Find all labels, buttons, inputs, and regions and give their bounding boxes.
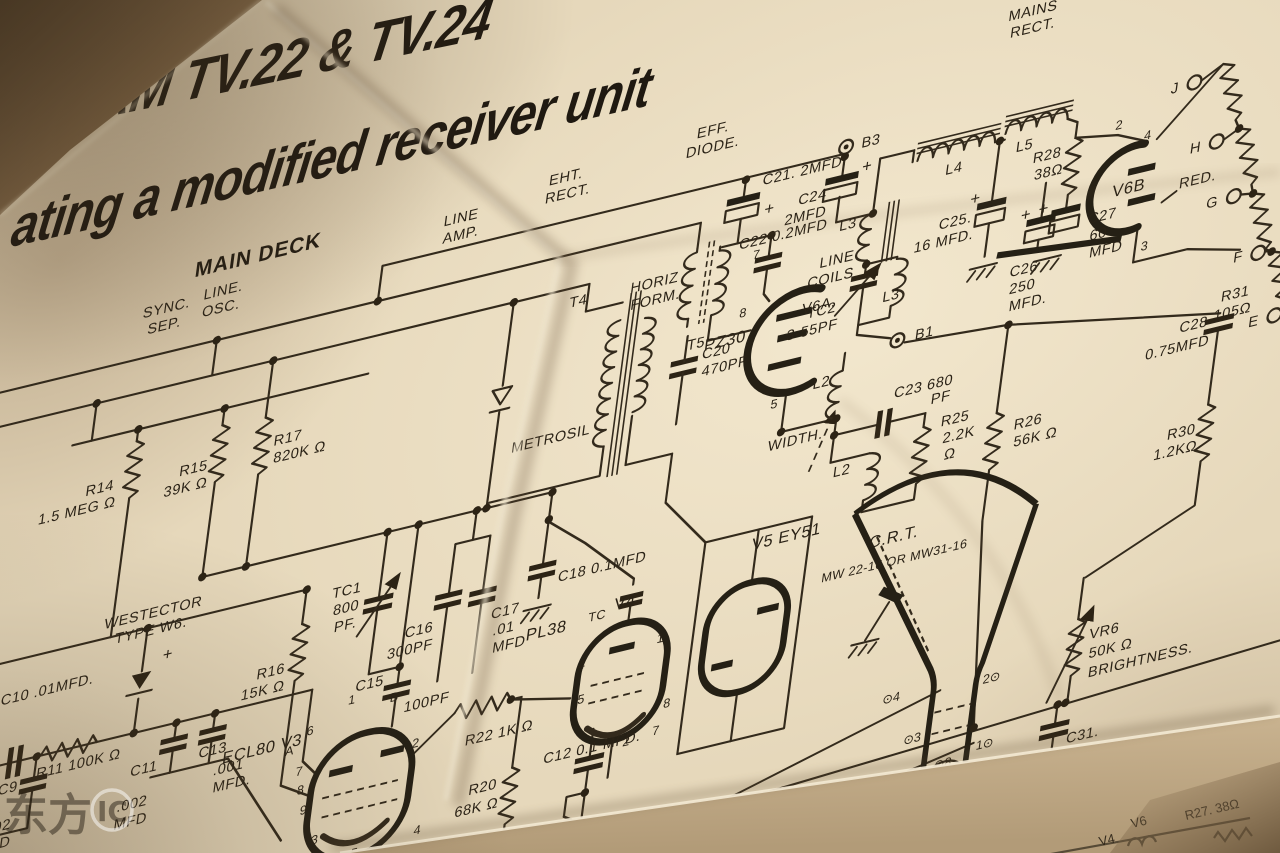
pin-ecl80-5: 5	[350, 844, 359, 853]
schematic-drawing: AGRAM TV.22 & TV.24 ating a modified rec…	[0, 0, 1280, 853]
photo-of-circuit-diagram: AGRAM TV.22 & TV.24 ating a modified rec…	[0, 0, 1280, 853]
